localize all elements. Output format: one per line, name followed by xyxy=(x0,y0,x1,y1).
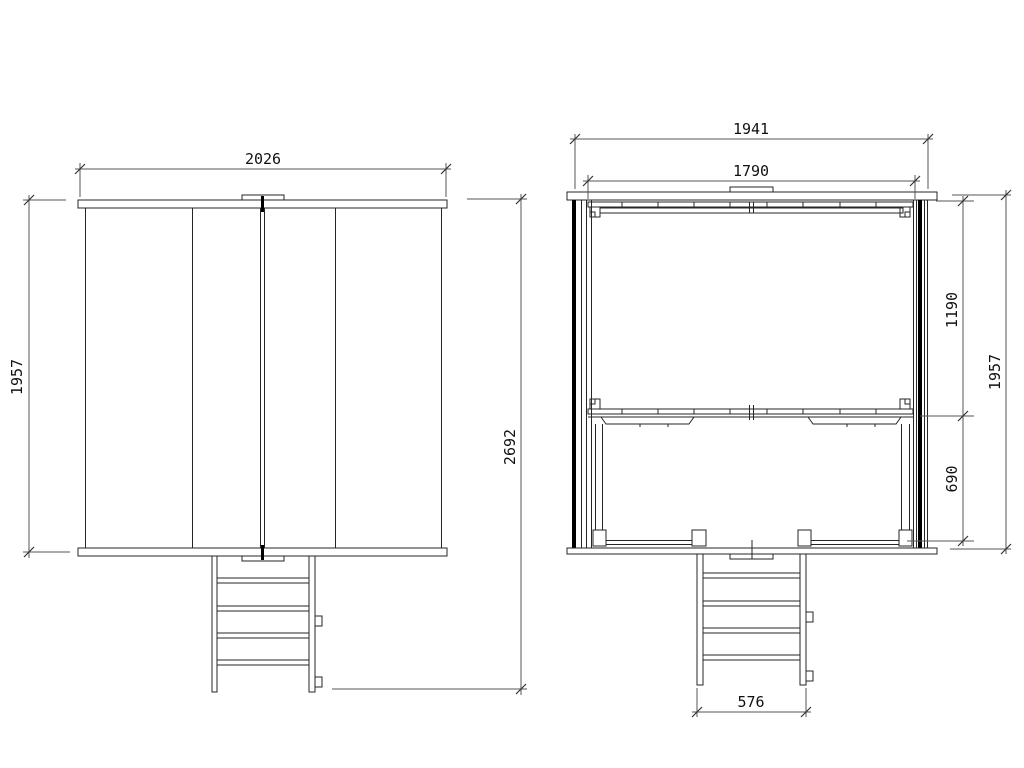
side-elevation-view: 1941 1790 1190 690 xyxy=(567,120,1011,717)
ladder-left-rail xyxy=(212,556,217,692)
ladder-rung xyxy=(703,655,800,660)
side-top-plate xyxy=(567,192,937,200)
ladder-right-rail xyxy=(800,554,806,685)
left-slat-board xyxy=(601,417,694,424)
ladder-left-rail xyxy=(697,554,703,685)
ladder-right-rail xyxy=(309,556,315,692)
side-ladder xyxy=(697,554,813,685)
dimension-label: 576 xyxy=(737,693,764,711)
front-elevation-view: 2026 1957 2692 xyxy=(8,150,527,695)
right-slat-board xyxy=(808,417,901,424)
dimension-label: 1957 xyxy=(986,354,1004,390)
corner-bracket-mid-right-notch xyxy=(905,399,910,404)
ladder-hook-tab xyxy=(806,612,813,622)
dimension-side-height: 1957 xyxy=(950,190,1011,554)
side-lower-section xyxy=(567,424,937,559)
dimension-label: 1957 xyxy=(8,359,26,395)
dimension-label: 690 xyxy=(943,465,961,492)
post-shaded-edge xyxy=(572,200,576,548)
side-left-corner-post xyxy=(572,200,592,548)
ladder-hook-tab xyxy=(315,616,322,626)
dimension-label: 1190 xyxy=(943,292,961,328)
foot-block xyxy=(899,530,912,546)
ladder-rung xyxy=(217,660,309,665)
foot-block xyxy=(798,530,811,546)
foot-block xyxy=(593,530,606,546)
side-top-rail xyxy=(588,202,913,207)
side-top-tab xyxy=(730,187,773,192)
ladder-hook-tab xyxy=(315,677,322,687)
dimension-label: 2026 xyxy=(245,150,281,168)
side-right-corner-post xyxy=(914,200,928,548)
dimension-front-height: 1957 xyxy=(8,195,70,558)
ladder-rung xyxy=(703,628,800,633)
dimension-front-width: 2026 xyxy=(75,150,451,197)
side-top-inner-rail xyxy=(600,208,903,213)
ladder-rung xyxy=(703,601,800,606)
ladder-rung xyxy=(217,606,309,611)
dimension-ladder-width: 576 xyxy=(692,688,811,717)
side-mid-rail xyxy=(588,409,913,414)
dimension-label: 2692 xyxy=(501,429,519,465)
dimension-side-section-heights: 1190 690 xyxy=(907,196,974,546)
corner-bracket-mid-left-notch xyxy=(590,399,595,404)
ladder-hook-tab xyxy=(806,671,813,681)
front-ladder xyxy=(212,556,322,692)
side-slats xyxy=(601,417,901,427)
technical-drawing-page: 2026 1957 2692 xyxy=(0,0,1024,768)
elevation-drawing: 2026 1957 2692 xyxy=(0,0,1024,768)
ladder-rung xyxy=(217,633,309,638)
foot-block xyxy=(692,530,706,546)
corner-bracket-top-left-notch xyxy=(590,212,595,217)
corner-bracket-top-right-notch xyxy=(905,212,910,217)
dimension-front-overall-height: 2692 xyxy=(332,194,527,695)
dimension-label: 1790 xyxy=(733,162,769,180)
ladder-rung xyxy=(217,578,309,583)
post-shaded-edge xyxy=(918,200,922,548)
dimension-label: 1941 xyxy=(733,120,769,138)
ladder-rung xyxy=(703,573,800,578)
